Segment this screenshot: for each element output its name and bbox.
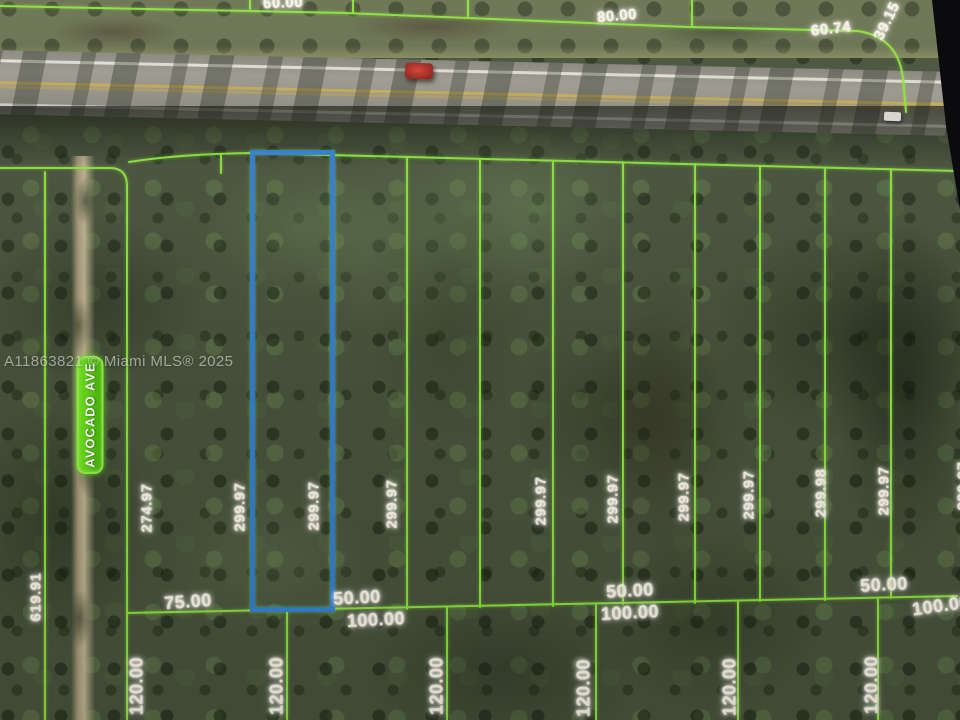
dimension-label: 120.00 (127, 657, 148, 715)
dimension-label: 619.91 (28, 573, 45, 622)
dimension-label: 120.00 (427, 657, 448, 715)
dimension-label: 120.00 (862, 656, 883, 714)
dimension-label: 80.00 (596, 6, 637, 26)
dimension-label: 299.98 (813, 469, 830, 518)
dimension-label: 299.97 (306, 482, 323, 531)
dimension-label: 60.74 (810, 18, 852, 39)
dimension-label: 120.00 (267, 657, 288, 715)
dimension-label: 75.00 (164, 590, 213, 614)
dimension-label: 299.97 (384, 480, 401, 529)
dimension-label: 50.00 (860, 573, 909, 596)
dimension-label: 299.97 (533, 477, 550, 526)
dimension-label: 299.97 (676, 473, 693, 522)
mls-watermark: A11863821 © Miami MLS® 2025 (4, 353, 233, 370)
dimension-label: 299.97 (605, 475, 622, 524)
dimension-label: 39.15 (871, 0, 904, 43)
dimension-label: 299.97 (232, 483, 249, 532)
dimension-label: 120.00 (720, 658, 741, 716)
dimension-label: 100.00 (911, 592, 960, 621)
dimension-label: 100.00 (346, 608, 405, 632)
dimension-label: 299.97 (741, 471, 758, 520)
dimension-label: 299.97 (876, 467, 893, 516)
dimension-label: 299.97 (955, 462, 960, 511)
dimension-label: 50.00 (333, 586, 382, 609)
dimension-label: 60.00 (263, 0, 304, 12)
mls-aerial-parcel-photo: AVOCADO AVE 60.0080.0060.7439.15274.9729… (0, 0, 960, 720)
dimension-label: 274.97 (139, 484, 156, 533)
dimension-label: 50.00 (606, 579, 655, 602)
dimension-label: 120.00 (574, 659, 595, 717)
dimension-label: 100.00 (600, 601, 659, 625)
